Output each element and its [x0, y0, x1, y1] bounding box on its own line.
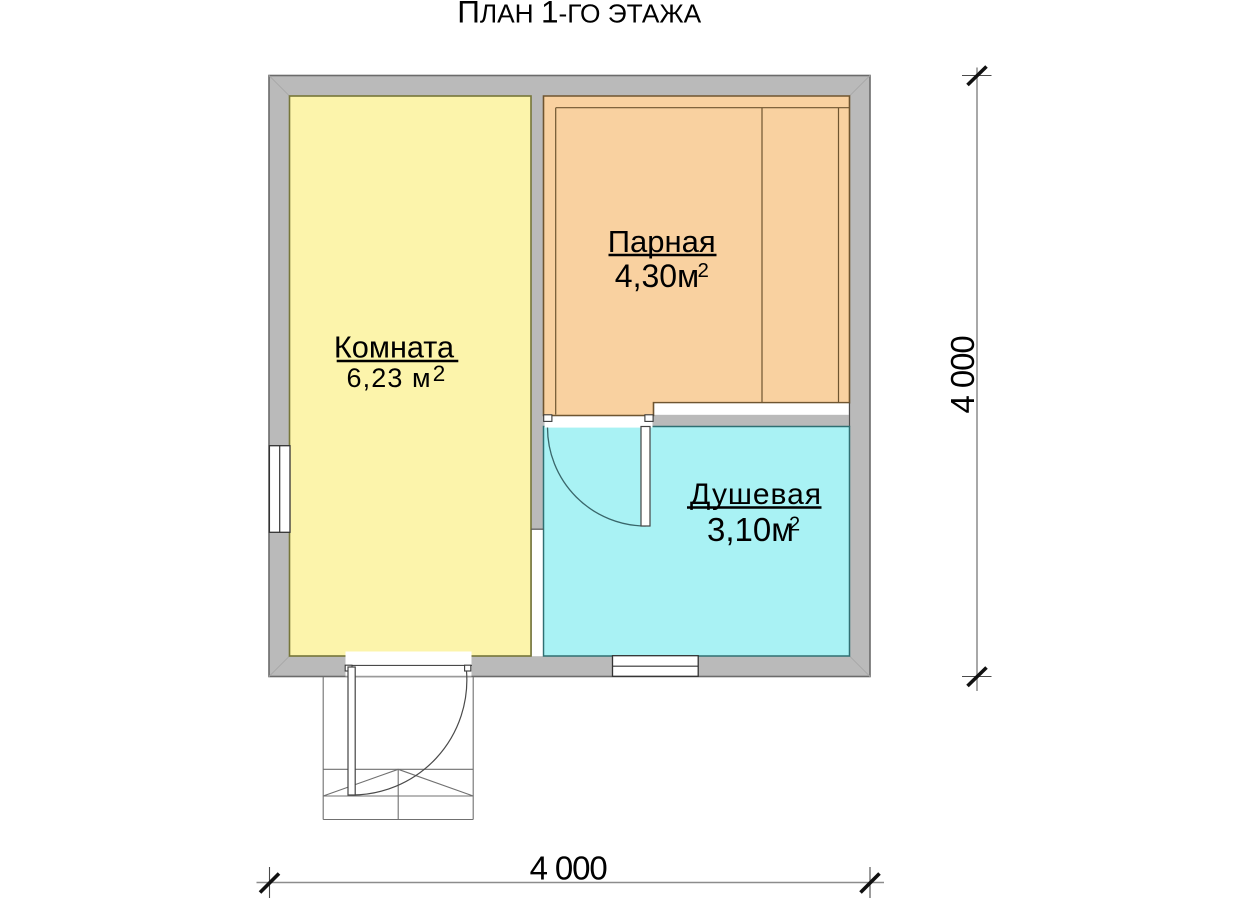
svg-text:ПЛАН 1-ГО ЭТАЖА: ПЛАН 1-ГО ЭТАЖА: [457, 0, 701, 30]
svg-text:2: 2: [789, 514, 800, 536]
svg-text:4 000: 4 000: [944, 336, 981, 414]
svg-text:2: 2: [698, 259, 709, 282]
svg-text:Комната: Комната: [334, 330, 455, 365]
svg-text:6,23 м: 6,23 м: [347, 363, 432, 393]
svg-text:4,30м: 4,30м: [615, 258, 699, 294]
svg-text:Душевая: Душевая: [690, 478, 822, 511]
svg-text:2: 2: [433, 361, 446, 386]
svg-text:4 000: 4 000: [530, 849, 608, 886]
svg-text:3,10м: 3,10м: [707, 511, 794, 548]
